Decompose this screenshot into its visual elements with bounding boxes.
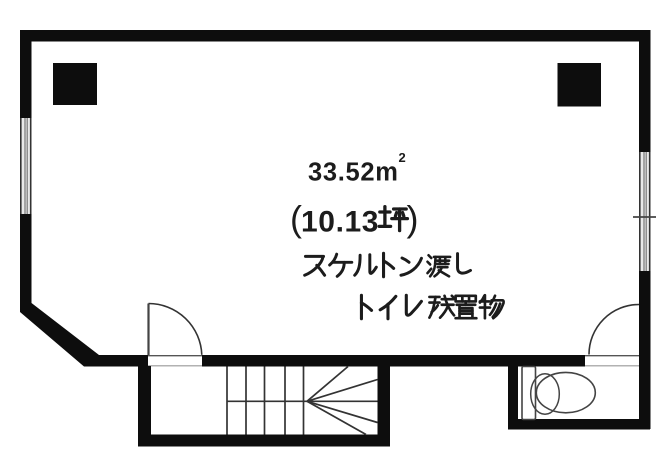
svg-text:2: 2 xyxy=(399,150,406,165)
svg-text:10.13: 10.13 xyxy=(301,206,379,239)
svg-text:33.52m: 33.52m xyxy=(308,159,399,187)
svg-text:): ) xyxy=(407,198,419,239)
